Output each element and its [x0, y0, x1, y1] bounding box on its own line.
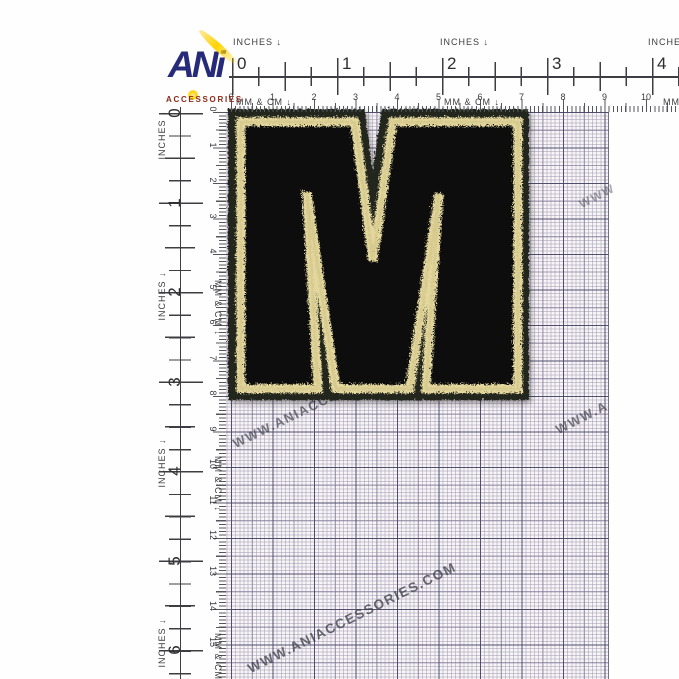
- left-inch-number: 3: [165, 377, 185, 386]
- mm-cm-label-left: MM & CM ↓: [213, 456, 223, 512]
- left-inch-number: 5: [165, 556, 185, 565]
- left-cm-number: 13: [208, 565, 218, 575]
- left-inch-number: 2: [165, 287, 185, 296]
- inches-label-left: INCHES ↓: [157, 618, 167, 667]
- inches-label-left: INCHES ↓: [157, 110, 167, 159]
- left-inch-number: 4: [165, 466, 185, 475]
- inches-label-left: INCHES ↓: [157, 438, 167, 487]
- mm-cm-label: MM & CM ↓: [663, 97, 679, 107]
- top-cm-number: 4: [394, 92, 399, 102]
- left-cm-number: 4: [208, 248, 218, 253]
- left-cm-number: 7: [208, 355, 218, 360]
- top-cm-number: 2: [311, 92, 316, 102]
- left-cm-number: 3: [208, 213, 218, 218]
- inches-label: INCHES ↓: [648, 37, 679, 47]
- top-cm-number: 10: [641, 92, 651, 102]
- inches-label: INCHES ↓: [440, 37, 489, 47]
- top-cm-number: 9: [602, 92, 607, 102]
- mm-cm-label-left: MM & CM ↓: [213, 633, 223, 679]
- top-cm-number: 7: [519, 92, 524, 102]
- inches-label-left: INCHES ↓: [157, 271, 167, 320]
- product-photo: WWW.ANIACCESSORIES.COMWWW.AWWWWWW.ANIACC…: [0, 0, 679, 679]
- left-inch-number: 1: [165, 198, 185, 207]
- mm-cm-label: MM & CM ↓: [444, 97, 500, 107]
- brand-subtitle: ACCESSORIES: [166, 95, 243, 104]
- left-cm-number: 2: [208, 177, 218, 182]
- top-inch-number: 4: [657, 54, 666, 74]
- left-cm-number: 14: [208, 601, 218, 611]
- left-inch-number: 0: [165, 108, 185, 117]
- top-inch-number: 2: [447, 54, 456, 74]
- top-inch-number: 1: [342, 54, 351, 74]
- left-inch-number: 6: [165, 645, 185, 654]
- top-cm-number: 3: [353, 92, 358, 102]
- mm-cm-label-left: MM & CM ↓: [213, 280, 223, 336]
- brand-wordmark: ANi: [168, 46, 223, 84]
- left-cm-number: 1: [208, 142, 218, 147]
- top-cm-number: 8: [560, 92, 565, 102]
- top-inch-number: 3: [552, 54, 561, 74]
- left-cm-number: 8: [208, 390, 218, 395]
- brand-logo: ANi ACCESSORIES: [166, 46, 250, 108]
- left-cm-number: 12: [208, 530, 218, 540]
- top-cm-number: 5: [436, 92, 441, 102]
- left-cm-number: 9: [208, 426, 218, 431]
- ruler-text-layer: 0123401234567891001234560123456789101112…: [0, 0, 679, 679]
